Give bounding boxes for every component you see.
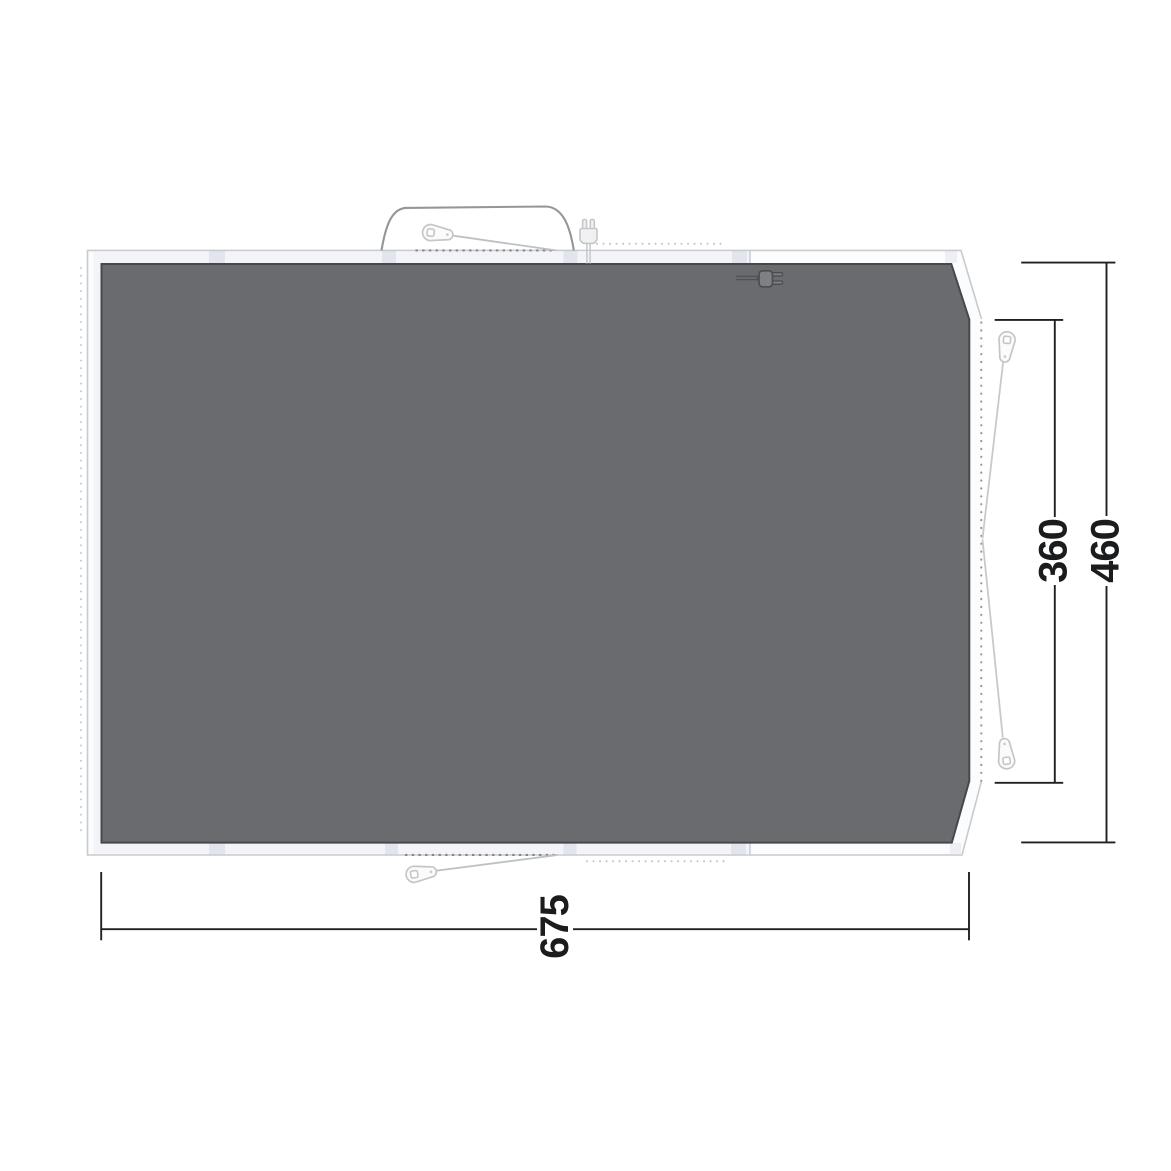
svg-text:360: 360 [1032,519,1076,583]
svg-text:460: 460 [1084,519,1128,583]
svg-text:675: 675 [533,894,577,958]
